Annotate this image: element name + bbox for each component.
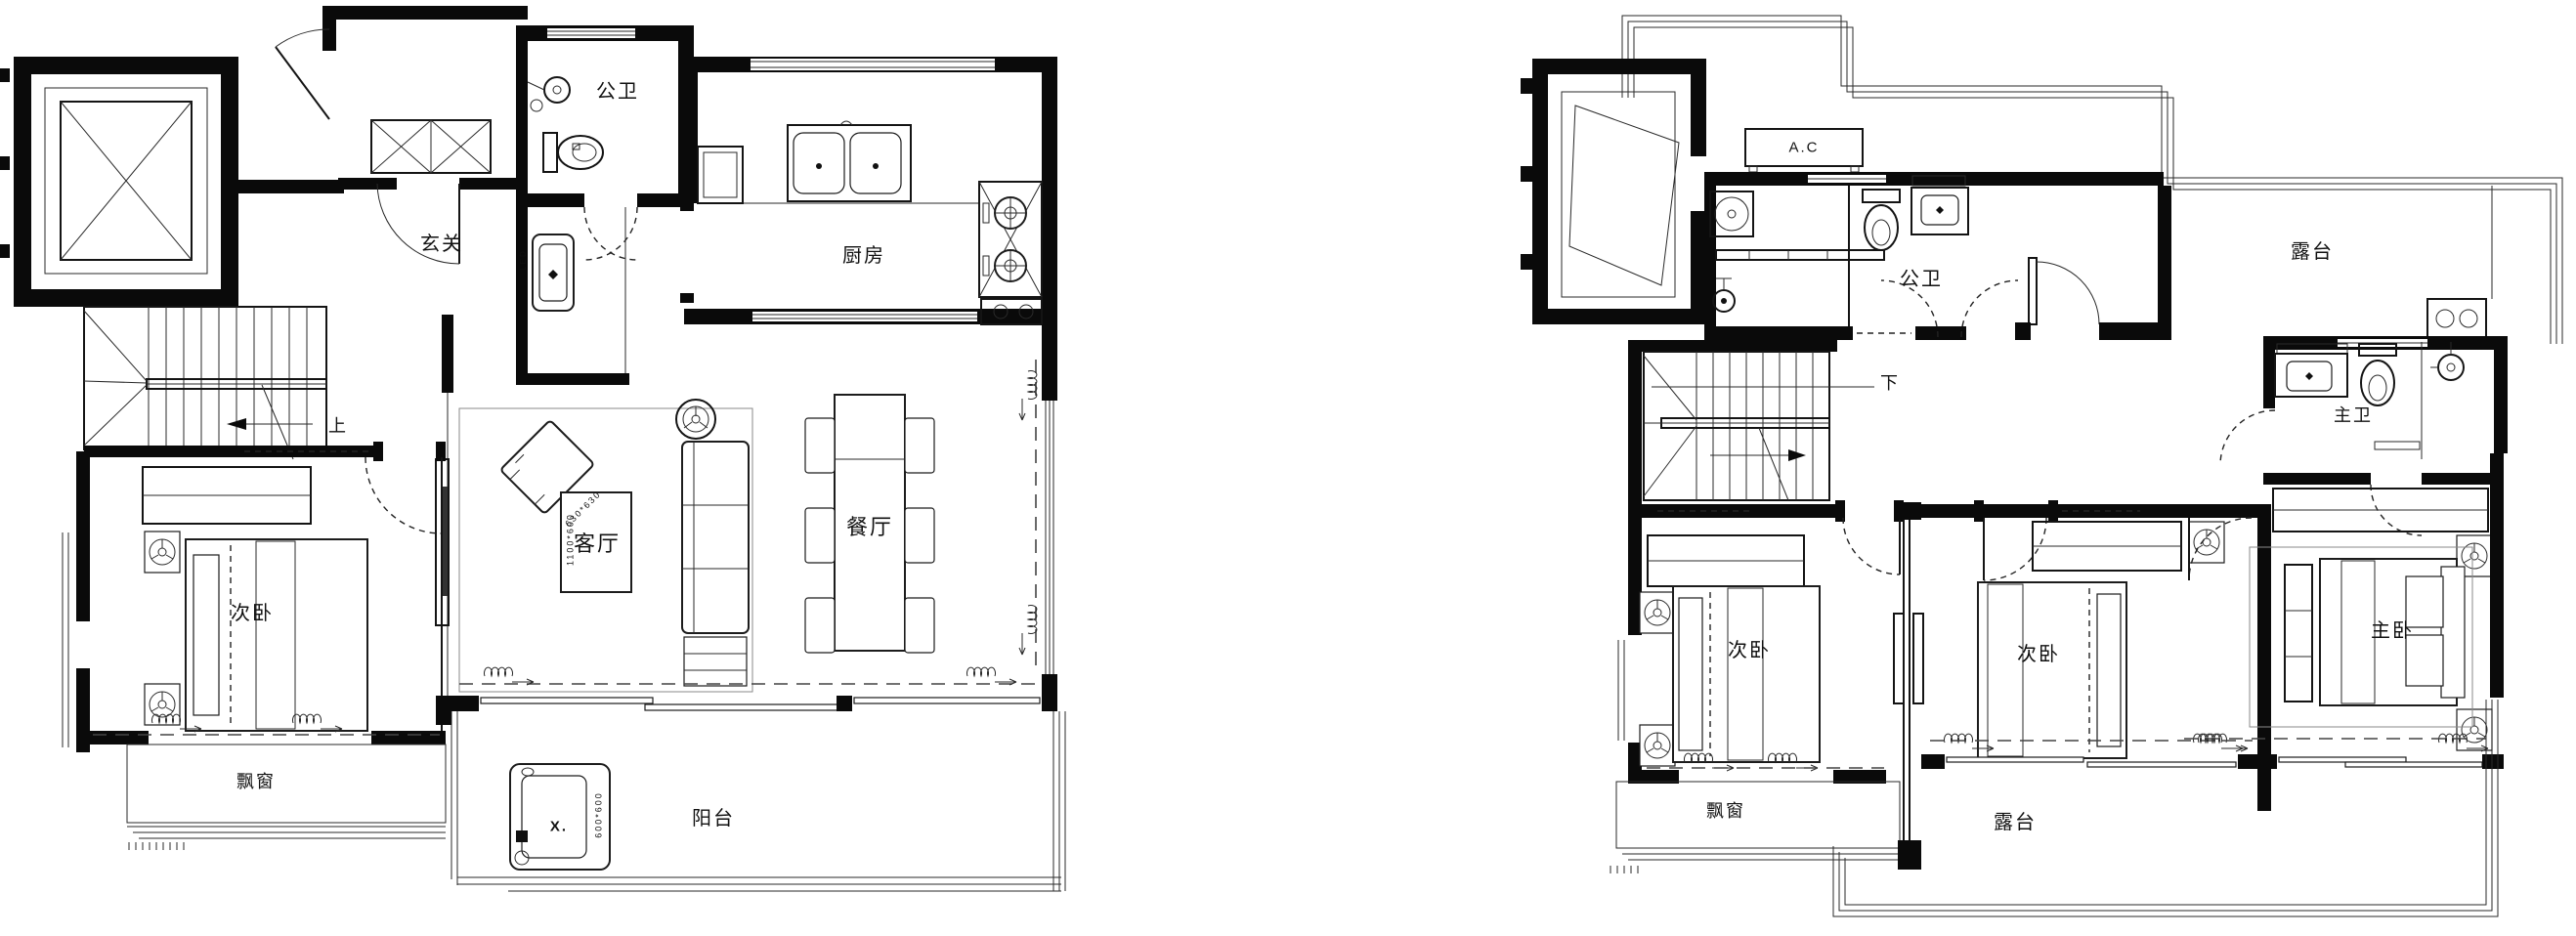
terrace-door-f2 <box>2015 258 2171 340</box>
bedroom-f1-room <box>63 442 451 850</box>
terrace-bottom-railing <box>1833 700 2498 916</box>
floorplan-drawing <box>0 0 2576 936</box>
living-room-f1 <box>436 315 752 696</box>
balcony-sliding-door <box>450 667 1057 711</box>
kitchen-f1 <box>680 57 1057 324</box>
bedroom-partition-f2 <box>1894 502 1923 870</box>
entry-foyer <box>238 6 528 264</box>
second-floor-plan <box>1521 16 2562 916</box>
bathroom-f2 <box>1704 176 2171 340</box>
dining-room-f1 <box>805 395 934 653</box>
stairs-f1 <box>84 307 328 459</box>
balcony-f1 <box>451 711 1065 891</box>
elevator-f2 <box>1521 59 1706 324</box>
stairs-f2 <box>1628 340 1874 508</box>
bedroom-f2a-room <box>1610 500 1904 873</box>
east-window-f1 <box>1019 324 1057 711</box>
elevator-f1 <box>0 57 238 307</box>
bathroom-f1 <box>516 25 694 260</box>
first-floor-plan <box>0 6 1065 891</box>
vanity-f1 <box>516 207 629 385</box>
bedroom-f2b-room <box>1921 500 2269 769</box>
floorplan-canvas: 玄关公卫厨房客厅餐厅次卧飘窗阳台上LED630*6301100*600600*6… <box>0 0 2576 936</box>
